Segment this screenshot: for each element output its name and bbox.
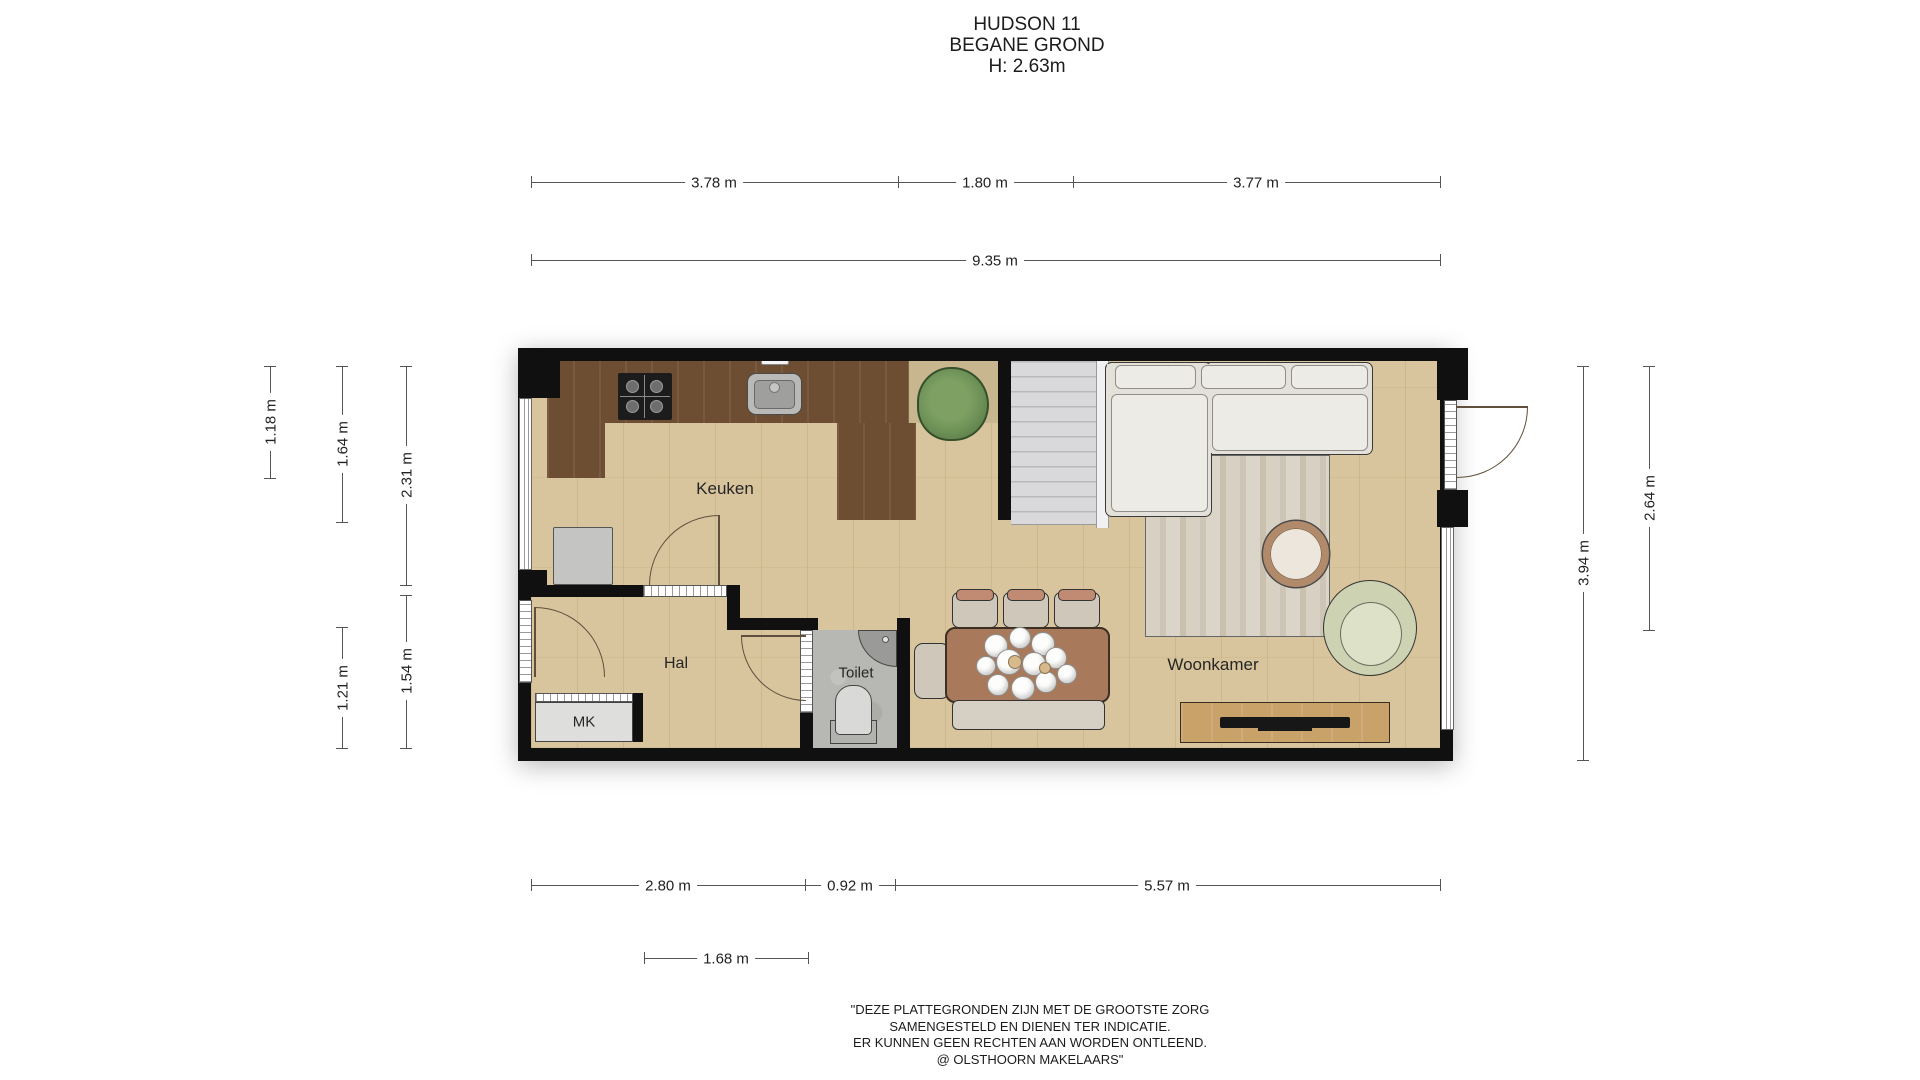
room-label-hal: Hal	[664, 655, 688, 673]
title-floor: BEGANE GROND	[827, 35, 1227, 56]
dim-label-keuken-width: 3.78 m	[685, 175, 743, 192]
dim-tick	[1073, 176, 1074, 188]
stove-burner	[650, 400, 663, 413]
dim-label-keuken-depth: 2.31 m	[399, 446, 416, 504]
pendant-hub	[1008, 655, 1022, 669]
pendant-sphere	[1009, 627, 1031, 649]
corner-sink-tap	[882, 636, 889, 643]
wall-right-block-upper	[1437, 348, 1468, 400]
disclaimer-line: ER KUNNEN GEEN RECHTEN AAN WORDEN ONTLEE…	[830, 1035, 1230, 1052]
tv-icon	[1220, 717, 1350, 728]
sofa-seat-cushion	[1212, 394, 1368, 451]
dining-chair-back	[956, 589, 994, 601]
dim-tick	[531, 254, 532, 266]
sofa-chaise-cushion	[1111, 394, 1208, 512]
right-door-frame	[1444, 400, 1457, 490]
dim-tick	[1643, 630, 1655, 631]
dim-tick	[1643, 366, 1655, 367]
title-height: H: 2.63m	[827, 56, 1227, 77]
dim-label-hal-width: 2.80 m	[639, 878, 697, 895]
dim-label-window: 1.18 m	[263, 393, 280, 451]
dining-bench	[952, 700, 1105, 730]
window-keuken-left	[519, 398, 532, 570]
dim-tick	[400, 366, 412, 367]
front-door-frame	[519, 600, 532, 683]
disclaimer-line: @ OLSTHOORN MAKELAARS"	[830, 1052, 1230, 1069]
dim-tick	[531, 879, 532, 891]
page-title: HUDSON 11 BEGANE GROND H: 2.63m	[827, 14, 1227, 77]
stove-burner	[626, 380, 639, 393]
dim-tick	[336, 748, 348, 749]
toilet-bowl-icon	[835, 685, 872, 735]
wall-keuken-hal	[518, 585, 643, 597]
wall-right-block-lower	[1437, 490, 1468, 527]
staircase	[1011, 361, 1097, 525]
pendant-sphere	[1057, 664, 1077, 684]
wall-bottom	[518, 748, 1453, 761]
dim-tick	[336, 522, 348, 523]
room-label-mk: MK	[573, 714, 596, 731]
room-label-keuken: Keuken	[696, 479, 754, 499]
dim-label-woonkamer-bottom-width: 5.57 m	[1138, 878, 1196, 895]
entry-door-swing-arc	[1457, 407, 1528, 478]
dim-label-trap-width: 1.80 m	[956, 175, 1014, 192]
keuken-door-frame	[643, 585, 727, 597]
dim-tick	[805, 879, 806, 891]
dim-tick	[400, 748, 412, 749]
pendant-sphere	[1011, 676, 1035, 700]
wall-toilet-east	[897, 618, 910, 748]
dim-label-toilet-width: 0.92 m	[821, 878, 879, 895]
wall-corner-topleft	[518, 348, 560, 398]
sofa-back-cushion	[1201, 365, 1286, 389]
dim-tick	[808, 952, 809, 964]
dim-tick	[898, 176, 899, 188]
wall-toilet-west-lower	[800, 713, 813, 748]
sofa-back-cushion	[1115, 365, 1196, 389]
sink-drain	[769, 382, 780, 393]
dim-tick	[644, 952, 645, 964]
wall-mk-right	[633, 693, 643, 742]
dim-label-left-121: 1.21 m	[335, 659, 352, 717]
armchair-cushion	[1340, 602, 1402, 666]
disclaimer-line: "DEZE PLATTEGRONDEN ZIJN MET DE GROOTSTE…	[830, 1002, 1230, 1019]
dim-label-hal-depth: 1.54 m	[399, 642, 416, 700]
dim-tick	[531, 176, 532, 188]
dining-chair-back	[1058, 589, 1096, 601]
dim-tick	[1440, 879, 1441, 891]
stove-grid-line	[620, 396, 670, 397]
room-label-woonkamer: Woonkamer	[1167, 655, 1258, 675]
dim-label-plan-depth: 3.94 m	[1576, 534, 1593, 592]
plant-icon	[917, 367, 989, 441]
pendant-sphere	[1035, 671, 1057, 693]
pendant-sphere	[976, 656, 996, 676]
disclaimer-text: "DEZE PLATTEGRONDEN ZIJN MET DE GROOTSTE…	[830, 1002, 1230, 1068]
wall-top	[518, 348, 1453, 361]
dim-label-total-width: 9.35 m	[966, 253, 1024, 270]
dim-tick	[400, 595, 412, 596]
dim-tick	[264, 366, 276, 367]
dim-tick	[264, 478, 276, 479]
dim-tick	[1440, 176, 1441, 188]
dim-tick	[1440, 254, 1441, 266]
wall-stairs-west	[998, 361, 1011, 520]
pendant-sphere	[987, 674, 1009, 696]
dim-tick	[1577, 760, 1589, 761]
kitchen-counter-right-return	[837, 423, 916, 520]
stove-icon	[618, 373, 672, 420]
dim-label-woonkamer-width: 3.77 m	[1227, 175, 1285, 192]
mk-door-frame	[535, 693, 633, 702]
kitchen-sink-icon	[747, 373, 802, 415]
dim-tick	[895, 879, 896, 891]
floorplan-drawing: Keuken Hal Toilet MK Woonkamer	[518, 348, 1453, 761]
floorplan-page: HUDSON 11 BEGANE GROND H: 2.63m 3.78 m 1…	[0, 0, 1920, 1080]
dim-tick	[336, 627, 348, 628]
room-label-toilet: Toilet	[838, 665, 873, 682]
dim-label-left-164: 1.64 m	[335, 415, 352, 473]
tv-stand	[1258, 728, 1312, 731]
stove-burner	[650, 380, 663, 393]
dim-tick	[1577, 366, 1589, 367]
title-project: HUDSON 11	[827, 14, 1227, 35]
pendant-hub	[1039, 662, 1051, 674]
window-woonkamer-right	[1441, 527, 1454, 730]
kitchen-cabinet	[553, 527, 613, 585]
kitchen-counter-top	[547, 361, 908, 423]
coffee-table-icon	[1263, 521, 1329, 587]
wall-toilet-top	[727, 618, 818, 630]
dim-label-entry-width: 1.68 m	[697, 951, 755, 968]
kitchen-counter-left-return	[547, 423, 605, 478]
dim-label-right-264: 2.64 m	[1642, 469, 1659, 527]
dining-chair-back	[1007, 589, 1045, 601]
disclaimer-line: SAMENGESTELD EN DIENEN TER INDICATIE.	[830, 1019, 1230, 1036]
dim-tick	[336, 366, 348, 367]
stove-burner	[626, 400, 639, 413]
dim-tick	[400, 585, 412, 586]
sofa-back-cushion	[1291, 365, 1368, 389]
